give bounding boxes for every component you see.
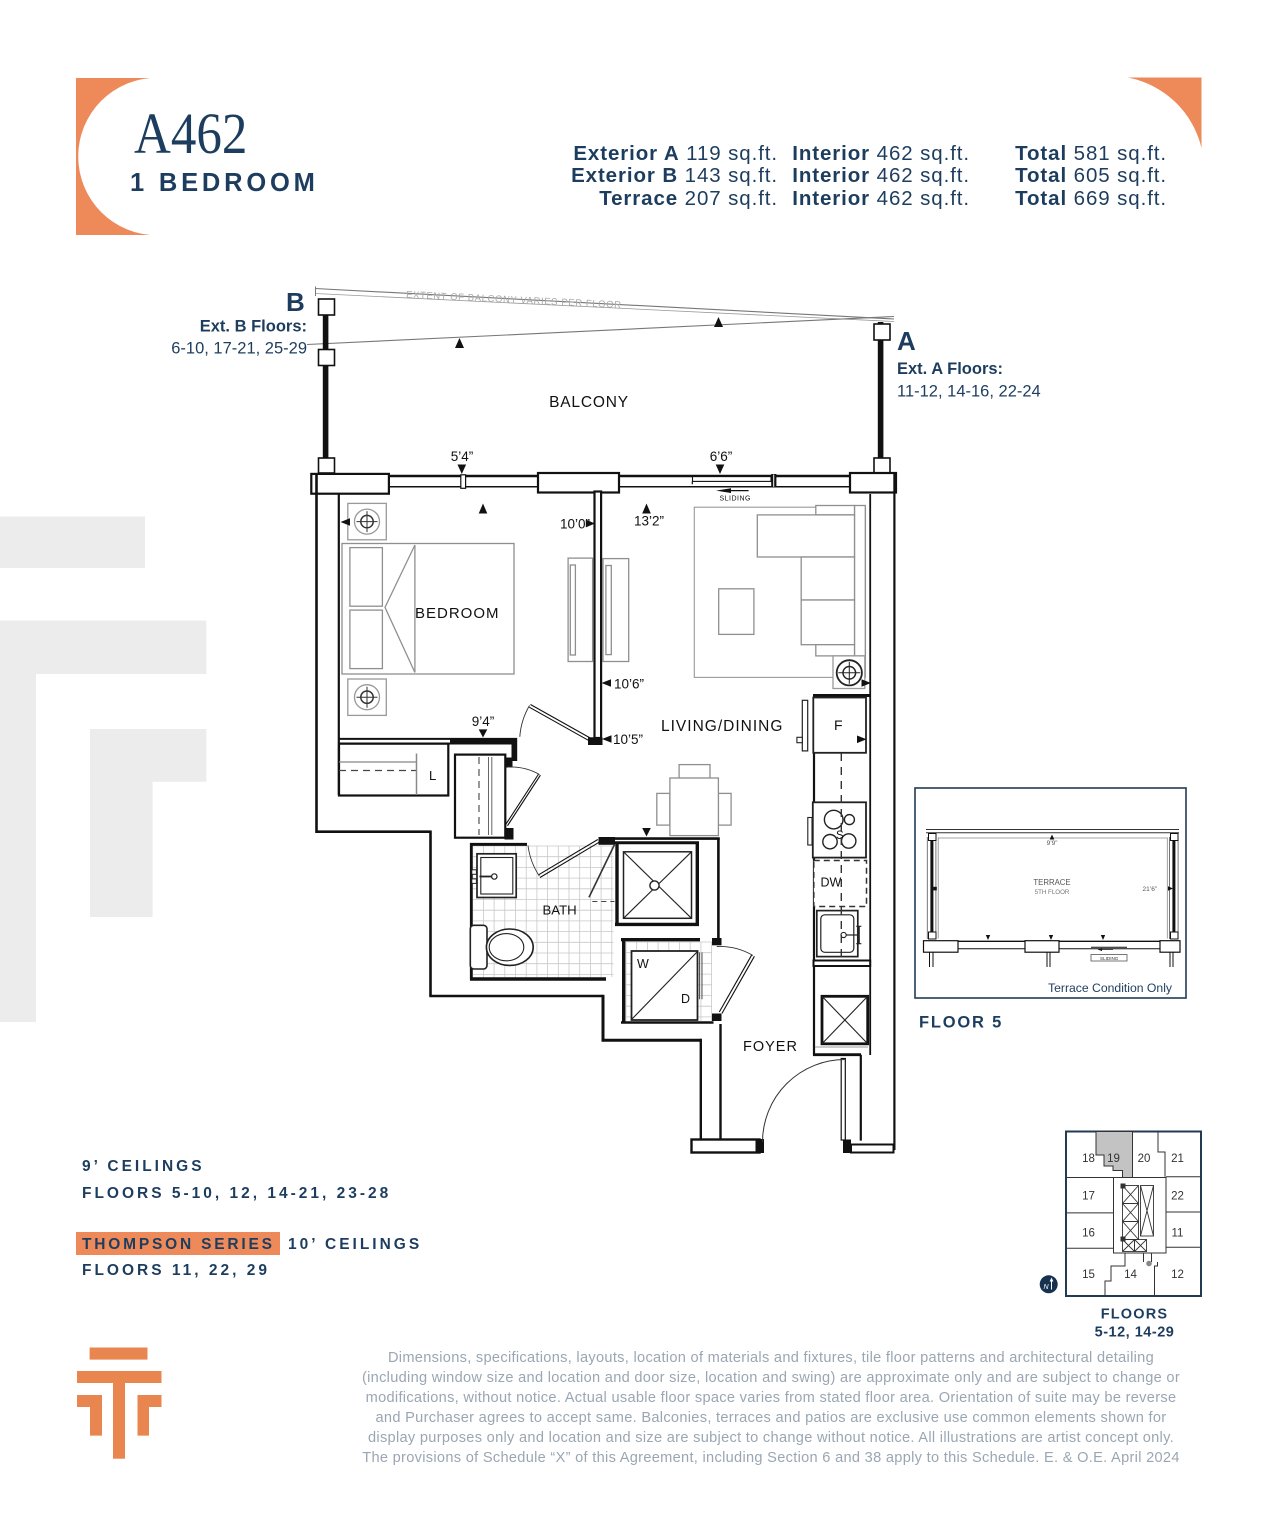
svg-text:5-12, 14-29: 5-12, 14-29 — [1095, 1325, 1175, 1341]
svg-text:18: 18 — [1082, 1153, 1095, 1165]
svg-text:12: 12 — [1171, 1269, 1184, 1281]
svg-text:5’4”: 5’4” — [451, 449, 474, 464]
svg-text:FLOORS: FLOORS — [1101, 1307, 1169, 1323]
svg-text:FLOOR 5: FLOOR 5 — [919, 1014, 1003, 1032]
svg-text:22: 22 — [1171, 1191, 1184, 1203]
svg-text:B: B — [286, 287, 305, 317]
svg-text:10’5”: 10’5” — [613, 732, 643, 747]
svg-text:Ext. B Floors:: Ext. B Floors: — [200, 318, 307, 336]
svg-text:11-12, 14-16, 22-24: 11-12, 14-16, 22-24 — [897, 383, 1041, 401]
svg-text:D: D — [681, 992, 690, 1006]
svg-text:Ext. A Floors:: Ext. A Floors: — [897, 360, 1003, 378]
svg-text:BEDROOM: BEDROOM — [415, 605, 500, 622]
svg-text:S: S — [836, 830, 844, 842]
svg-text:6’6”: 6’6” — [710, 449, 733, 464]
svg-text:BALCONY: BALCONY — [549, 394, 629, 411]
svg-text:20: 20 — [1138, 1153, 1151, 1165]
svg-text:TERRACE: TERRACE — [1033, 878, 1070, 887]
svg-text:10’6”: 10’6” — [614, 677, 644, 692]
svg-text:16: 16 — [1082, 1228, 1095, 1240]
svg-text:10’0”: 10’0” — [560, 517, 590, 532]
svg-text:11: 11 — [1172, 1228, 1184, 1240]
svg-text:SLIDING: SLIDING — [1100, 956, 1119, 961]
svg-text:L: L — [429, 768, 436, 783]
svg-text:15: 15 — [1082, 1269, 1095, 1281]
svg-text:21: 21 — [1171, 1153, 1184, 1165]
svg-text:17: 17 — [1082, 1191, 1095, 1203]
svg-text:6-10, 17-21, 25-29: 6-10, 17-21, 25-29 — [171, 340, 307, 358]
svg-text:F: F — [834, 717, 843, 733]
svg-text:A: A — [897, 326, 916, 356]
svg-text:19: 19 — [1107, 1153, 1120, 1165]
svg-text:5TH FLOOR: 5TH FLOOR — [1035, 889, 1070, 896]
svg-text:W: W — [637, 957, 649, 971]
svg-text:LIVING/DINING: LIVING/DINING — [661, 718, 783, 735]
svg-text:Terrace Condition Only: Terrace Condition Only — [1048, 981, 1173, 995]
svg-text:BATH: BATH — [543, 903, 577, 918]
svg-text:14: 14 — [1124, 1269, 1137, 1281]
svg-text:13’2”: 13’2” — [634, 514, 664, 529]
svg-text:9’4”: 9’4” — [472, 714, 495, 729]
svg-text:EXTENT OF BALCONY VARIES PER F: EXTENT OF BALCONY VARIES PER FLOOR — [406, 290, 622, 312]
svg-text:DW: DW — [821, 876, 842, 890]
svg-text:FOYER: FOYER — [743, 1039, 798, 1055]
svg-text:21’6”: 21’6” — [1143, 886, 1157, 893]
svg-text:SLIDING: SLIDING — [720, 496, 752, 503]
svg-text:9’9”: 9’9” — [1047, 840, 1058, 847]
